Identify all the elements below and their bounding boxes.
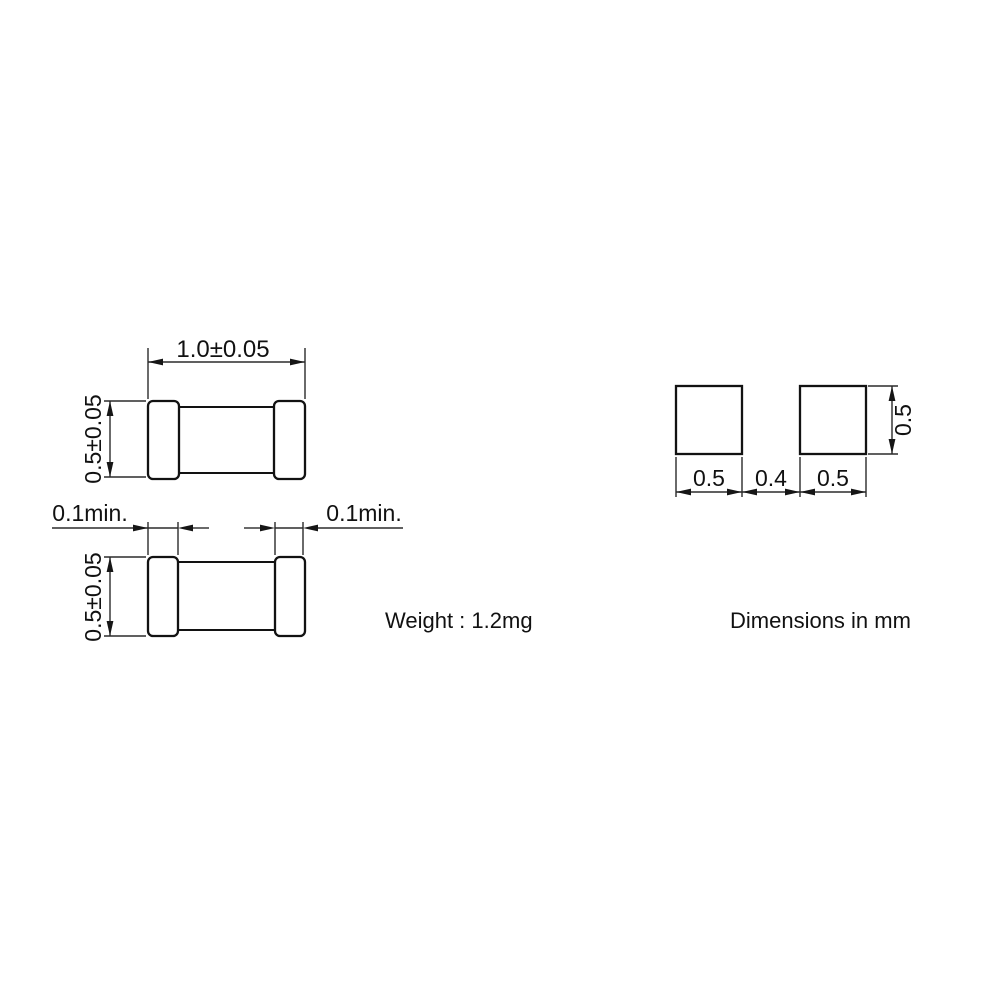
side-view-left-termination-dimension: 0.1min.	[52, 500, 209, 555]
arrowhead-down-icon	[107, 462, 114, 477]
arrowhead-right-icon	[133, 525, 148, 532]
land-pattern-right-pad	[800, 386, 866, 454]
land-pattern-left-pad	[676, 386, 742, 454]
chip-body-side-view	[178, 562, 275, 630]
land-pattern-height-dimension: 0.5	[868, 386, 916, 454]
chip-side-view	[148, 557, 305, 636]
arrowhead-left-icon	[148, 359, 163, 366]
side-view-right-termination-label: 0.1min.	[326, 500, 401, 526]
land-pattern	[676, 386, 866, 454]
chip-top-view	[148, 401, 305, 479]
arrowhead-right-icon	[260, 525, 275, 532]
arrowhead-left-icon	[178, 525, 193, 532]
chip-body-top-view	[178, 407, 275, 473]
side-view-right-termination-dimension: 0.1min.	[244, 500, 403, 555]
arrowhead-right-icon	[727, 489, 742, 496]
land-pattern-right-pad-width-label: 0.5	[817, 465, 849, 491]
land-pattern-pad-height-label: 0.5	[890, 404, 916, 436]
weight-note: Weight : 1.2mg	[385, 608, 533, 633]
arrowhead-up-icon	[889, 386, 896, 401]
chip-left-terminal-side-view	[148, 557, 178, 636]
chip-right-terminal-top-view	[274, 401, 305, 479]
chip-left-terminal-top-view	[148, 401, 179, 479]
arrowhead-down-icon	[889, 439, 896, 454]
side-view-height-dimension: 0.5±0.05	[80, 552, 146, 641]
arrowhead-up-icon	[107, 401, 114, 416]
land-pattern-width-dimensions: 0.5 0.4 0.5	[676, 457, 866, 497]
units-note: Dimensions in mm	[730, 608, 911, 633]
datasheet-dimension-drawing: 1.0±0.05 0.5±0.05 0.1min. 0.1min.	[0, 0, 1000, 1000]
arrowhead-right-icon	[851, 489, 866, 496]
drawing-svg: 1.0±0.05 0.5±0.05 0.1min. 0.1min.	[0, 0, 1000, 1000]
arrowhead-up-icon	[107, 557, 114, 572]
arrowhead-down-icon	[107, 621, 114, 636]
top-view-height-dimension: 0.5±0.05	[80, 394, 146, 483]
arrowhead-left-icon	[676, 489, 691, 496]
arrowhead-left-icon	[800, 489, 815, 496]
side-view-left-termination-label: 0.1min.	[52, 500, 127, 526]
top-view-height-label: 0.5±0.05	[80, 394, 106, 483]
arrowhead-left-icon	[303, 525, 318, 532]
side-view-height-label: 0.5±0.05	[80, 552, 106, 641]
land-pattern-left-pad-width-label: 0.5	[693, 465, 725, 491]
arrowhead-right-icon	[290, 359, 305, 366]
chip-right-terminal-side-view	[275, 557, 305, 636]
land-pattern-gap-label: 0.4	[755, 465, 787, 491]
arrowhead-right-icon	[785, 489, 800, 496]
top-view-width-dimension: 1.0±0.05	[148, 336, 305, 399]
top-view-width-label: 1.0±0.05	[176, 336, 269, 363]
